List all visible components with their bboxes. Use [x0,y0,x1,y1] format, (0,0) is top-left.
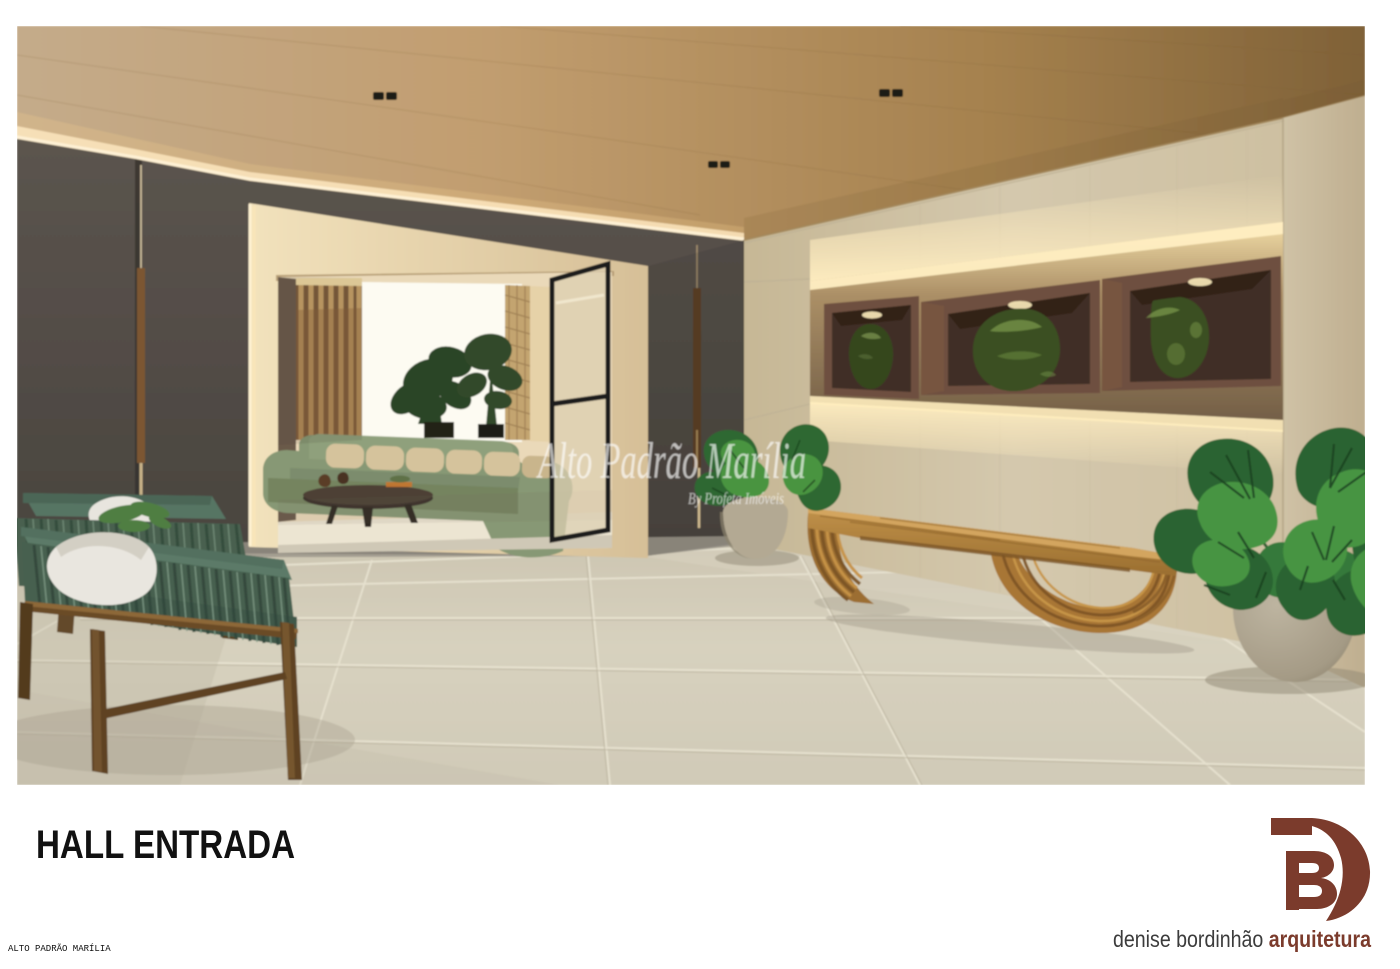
svg-text:Alto Padrão Marília: Alto Padrão Marília [536,433,806,490]
svg-text:HALL ENTRADA: HALL ENTRADA [36,823,295,867]
svg-text:ALTO PADRÃO MARÍLIA: ALTO PADRÃO MARÍLIA [8,943,111,954]
svg-text:denise bordinhão arquitetura: denise bordinhão arquitetura [1113,926,1371,952]
svg-text:By Profeta Imóveis: By Profeta Imóveis [688,489,784,508]
